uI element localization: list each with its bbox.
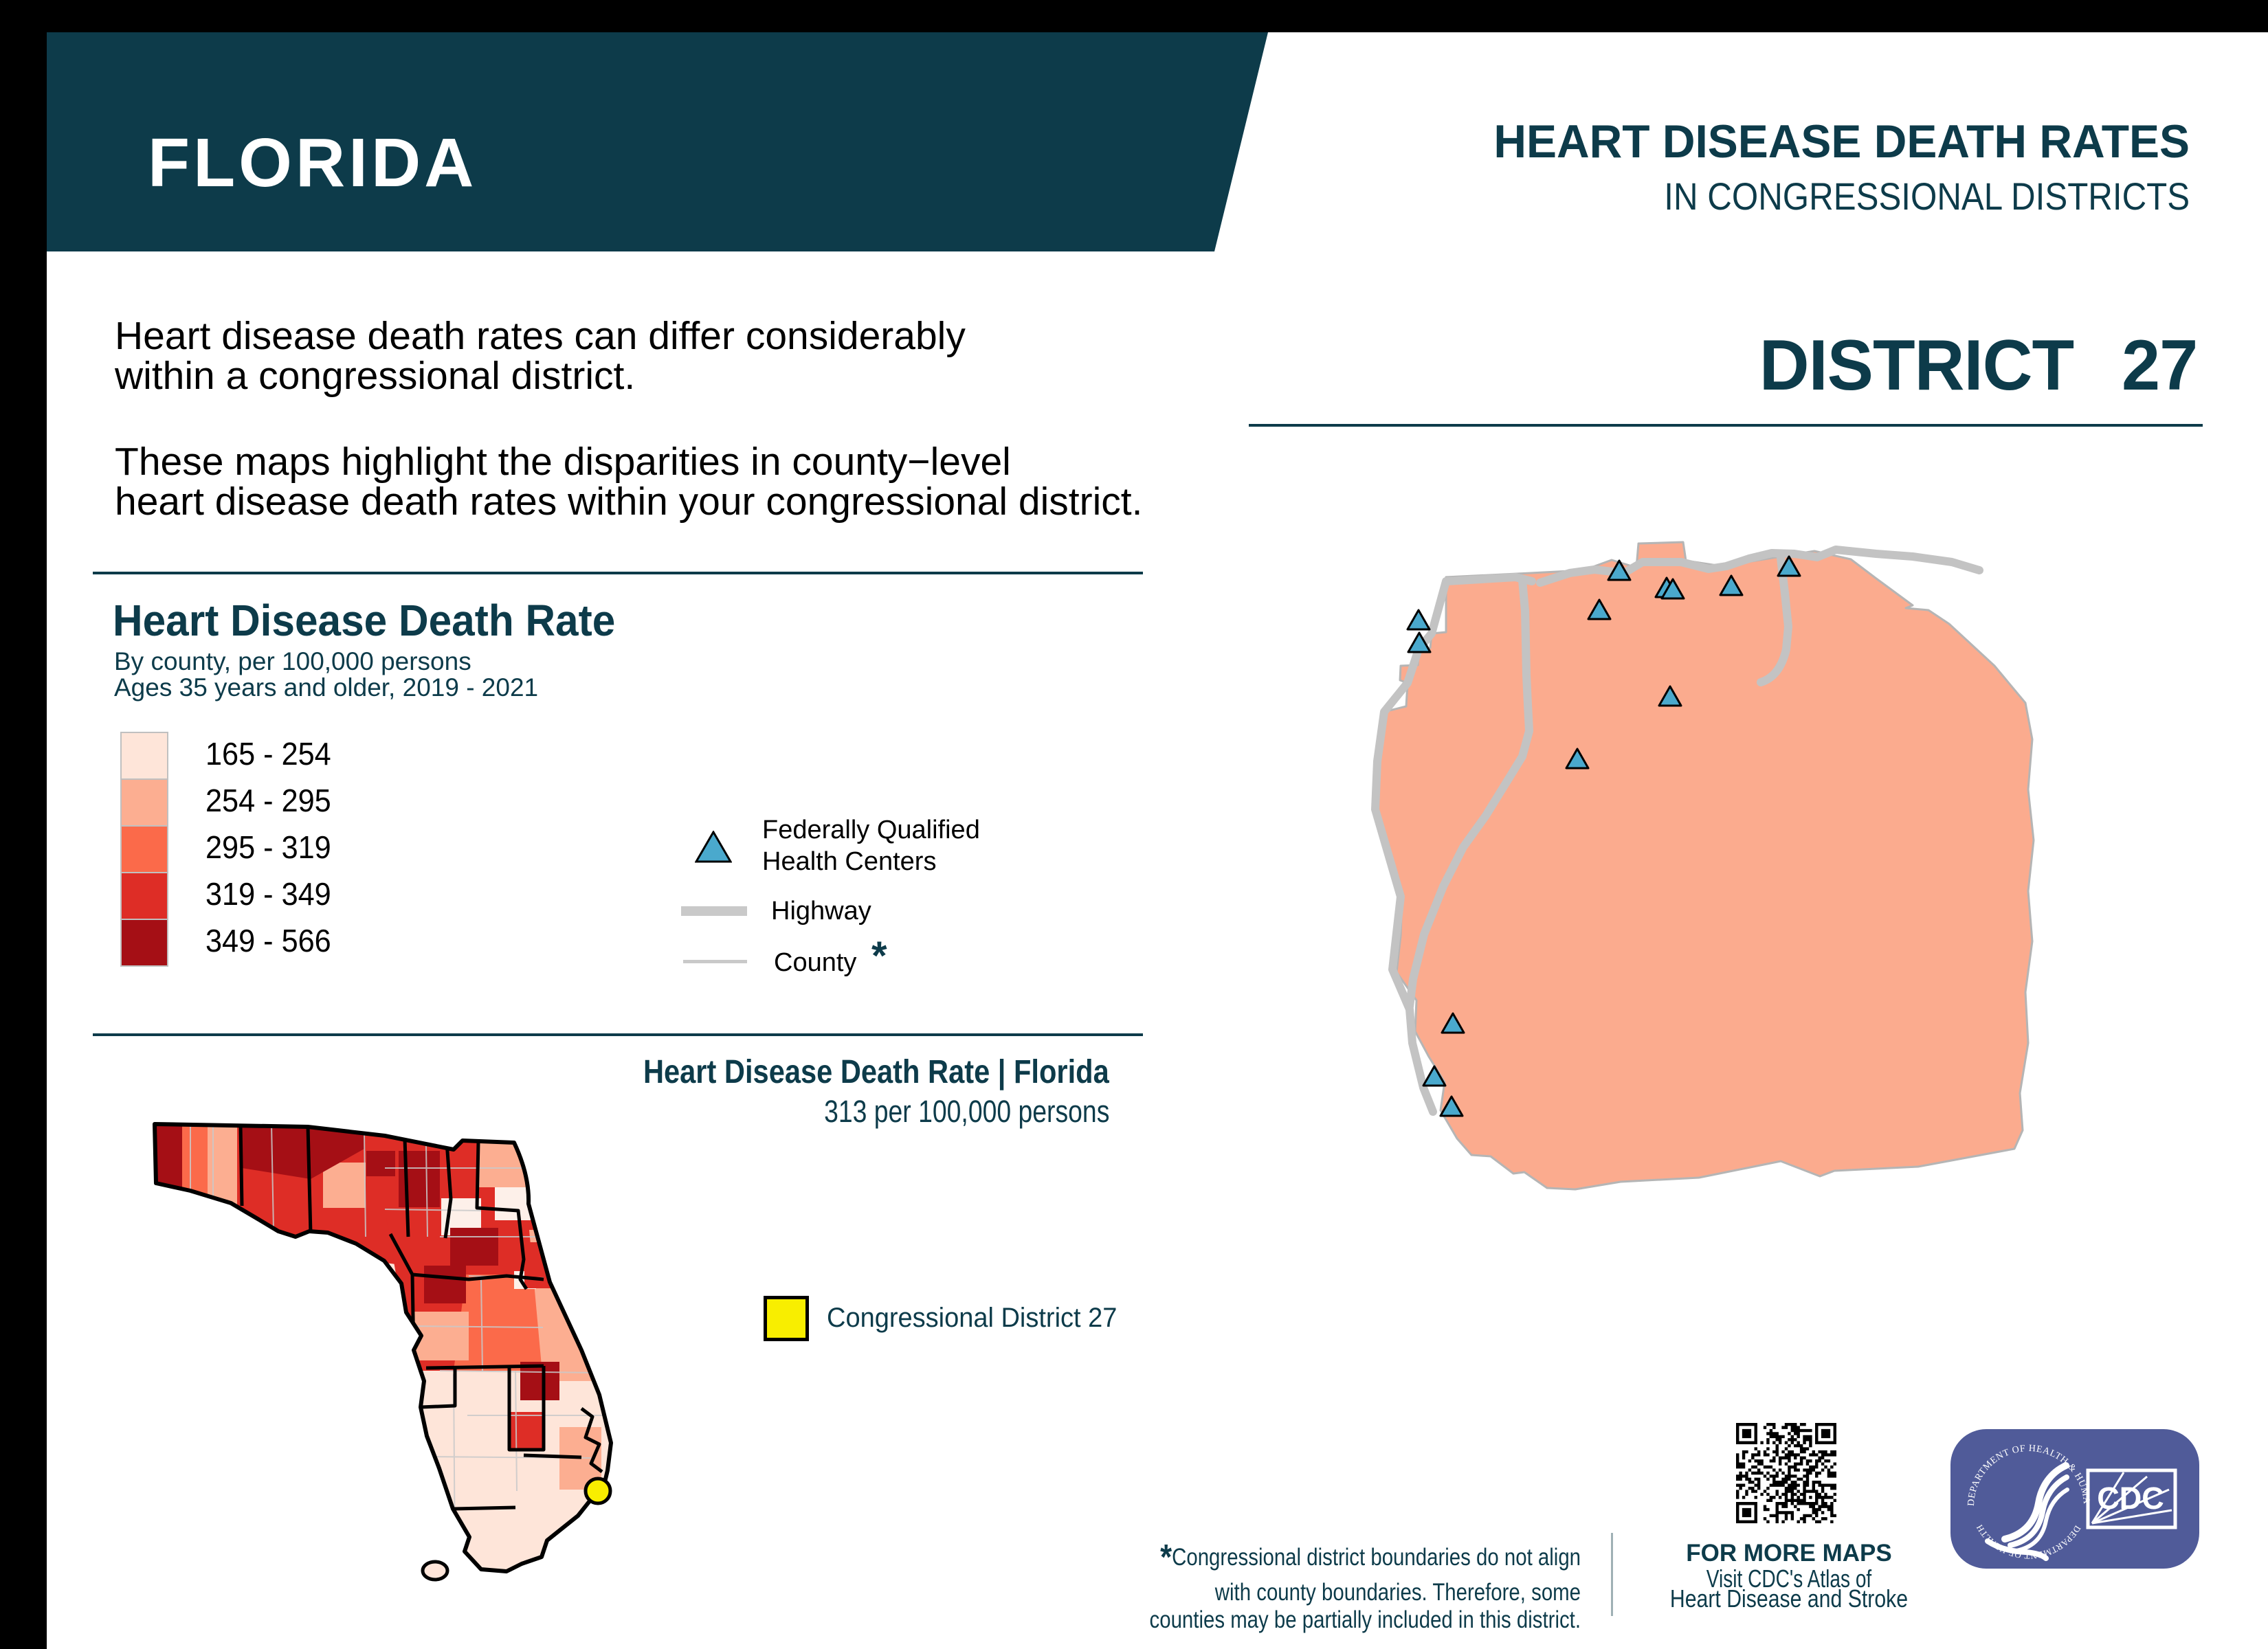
svg-text:CDC: CDC bbox=[2097, 1481, 2164, 1516]
